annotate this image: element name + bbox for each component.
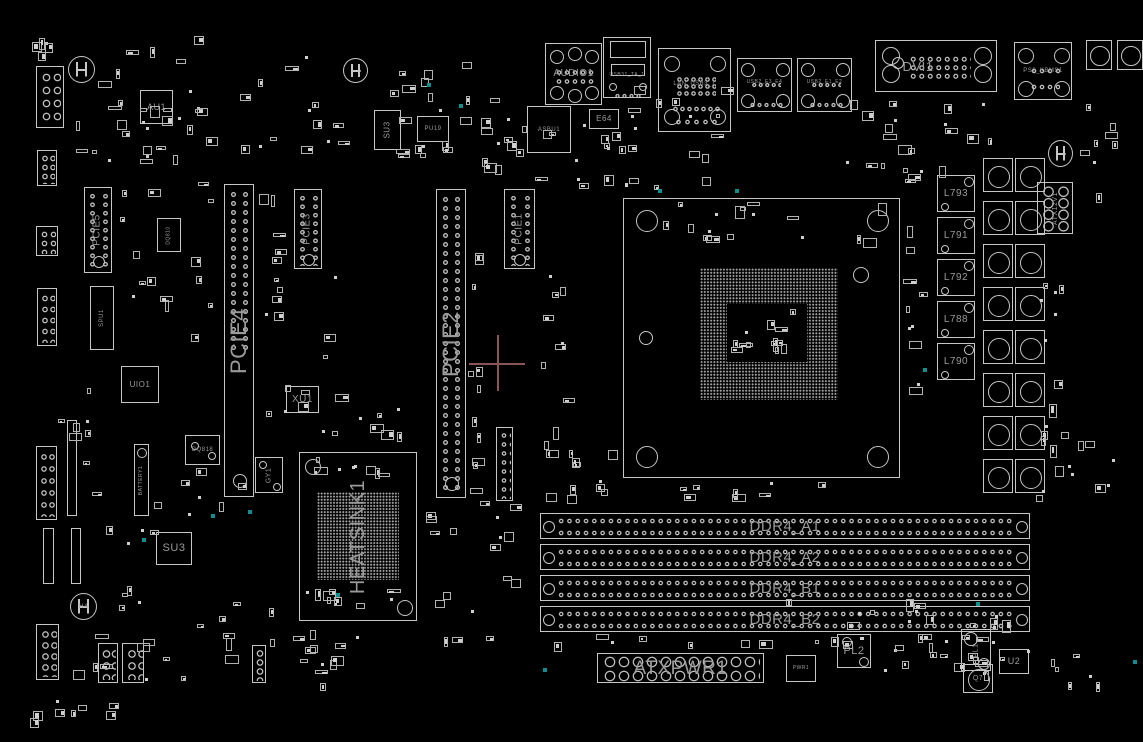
part: [1040, 299, 1043, 302]
capacitor: [983, 459, 1013, 493]
part: [570, 485, 576, 495]
part: [387, 589, 401, 593]
part: [926, 615, 934, 625]
part: [73, 670, 85, 680]
part: [322, 430, 325, 433]
part: [684, 494, 696, 501]
part: [181, 676, 186, 681]
part: [992, 641, 995, 644]
part: [678, 202, 683, 207]
component-ddr4-a1[interactable]: DDR4_A1: [540, 513, 1030, 539]
part: [503, 576, 512, 581]
part: [920, 170, 923, 173]
part: [301, 390, 310, 395]
component-dq818[interactable]: DQ818: [185, 435, 220, 465]
part: [73, 423, 80, 432]
part: [55, 709, 65, 717]
part: [628, 108, 641, 113]
part: [140, 159, 153, 164]
part: [486, 636, 494, 641]
part: [884, 669, 887, 672]
component-e64[interactable]: E64: [589, 109, 619, 129]
part: [993, 626, 996, 629]
part: [815, 640, 819, 644]
part: [1093, 161, 1096, 164]
component-pcie4[interactable]: PCIE4: [224, 184, 254, 497]
component-ddr4-b2[interactable]: DDR4_B2: [540, 606, 1030, 632]
part: [511, 579, 521, 588]
part: [555, 344, 566, 350]
part: [258, 79, 263, 87]
edge-connector: [37, 288, 57, 346]
part: [572, 458, 580, 468]
part: [984, 671, 989, 681]
part: [727, 234, 734, 240]
part: [120, 217, 125, 222]
part: [1044, 339, 1047, 342]
crystal-symbol: [68, 56, 95, 83]
component-pcie1[interactable]: PCIE1: [504, 189, 535, 269]
edge-connector: [37, 150, 57, 186]
part: [154, 502, 162, 509]
component-atxpwr1[interactable]: ATXPWR1: [597, 653, 764, 683]
part: [902, 661, 909, 669]
part: [430, 531, 440, 535]
part: [1054, 380, 1063, 389]
part: [225, 655, 239, 664]
part: [733, 489, 738, 498]
part: [908, 174, 921, 181]
part: [870, 610, 875, 615]
part: [305, 56, 308, 59]
part: [390, 90, 399, 97]
part: [546, 450, 550, 458]
part: [861, 637, 864, 640]
part: [69, 433, 82, 441]
part: [1054, 313, 1057, 316]
part: [702, 177, 711, 186]
part: [354, 465, 357, 468]
part: [181, 480, 190, 486]
part: [270, 137, 277, 141]
part: [359, 417, 362, 420]
component-label: PWR1: [787, 656, 815, 681]
part: [906, 247, 915, 254]
part: [480, 501, 490, 506]
part: [198, 182, 209, 186]
part: [76, 149, 88, 153]
part: [611, 641, 614, 644]
part: [332, 431, 338, 436]
via-marker: [543, 668, 547, 672]
part: [917, 383, 920, 386]
part: [163, 108, 172, 112]
part: [1080, 150, 1090, 156]
part: [911, 325, 914, 328]
part: [1045, 425, 1048, 428]
part: [759, 640, 773, 649]
part: [324, 334, 336, 342]
part: [516, 149, 524, 157]
part: [460, 117, 472, 125]
component-spu1[interactable]: SPU1: [90, 286, 114, 350]
part: [452, 637, 463, 643]
part: [497, 142, 500, 145]
part: [818, 482, 826, 488]
part: [274, 278, 279, 282]
part: [321, 663, 324, 666]
part: [176, 59, 186, 64]
part: [127, 542, 130, 545]
part: [1061, 432, 1069, 439]
part: [191, 334, 199, 342]
part: [269, 608, 274, 617]
part: [569, 450, 573, 458]
via-marker: [658, 189, 662, 193]
part: [945, 128, 958, 134]
part: [1055, 667, 1059, 672]
part: [634, 127, 637, 130]
part: [142, 121, 145, 124]
part: [481, 118, 491, 128]
component-su3[interactable]: SU3: [156, 532, 192, 565]
part: [208, 303, 213, 308]
part: [759, 493, 771, 497]
component-label: U2: [1000, 650, 1028, 673]
part: [422, 145, 425, 148]
part: [173, 155, 178, 165]
part: [397, 432, 402, 442]
part: [132, 295, 135, 298]
via-marker: [1133, 660, 1137, 664]
part: [139, 281, 146, 285]
via-marker: [427, 83, 431, 87]
part: [122, 131, 130, 137]
component-pwr1[interactable]: PWR1: [786, 655, 816, 682]
part: [903, 279, 917, 284]
part: [150, 106, 160, 118]
part: [156, 146, 166, 150]
part: [561, 342, 564, 345]
part: [745, 331, 748, 334]
part: [639, 636, 647, 642]
part: [396, 149, 410, 154]
part: [908, 620, 911, 623]
capacitor: [983, 158, 1013, 192]
part: [1071, 473, 1074, 476]
part: [919, 292, 928, 297]
capacitor: [1015, 158, 1045, 192]
part: [285, 66, 299, 71]
part: [92, 150, 97, 154]
via-marker: [459, 104, 463, 108]
capacitor: [983, 201, 1013, 235]
part: [327, 140, 330, 143]
part: [915, 610, 918, 613]
part: [922, 634, 932, 640]
part: [481, 128, 493, 135]
component-label: SU3: [157, 533, 191, 564]
part: [546, 493, 557, 502]
part: [878, 203, 887, 216]
component-pcie5[interactable]: PCIE5: [84, 187, 112, 273]
part: [504, 532, 514, 542]
component-pcie3[interactable]: PCIE3: [294, 189, 322, 269]
part: [914, 603, 926, 609]
part: [298, 402, 309, 412]
edge-connector: [43, 528, 54, 584]
part: [906, 306, 910, 313]
part: [310, 645, 318, 653]
component-audio1[interactable]: AUDIO1: [545, 43, 602, 105]
component-label: DQ810: [158, 219, 180, 251]
part: [468, 371, 474, 377]
part: [265, 313, 268, 316]
part: [735, 206, 745, 219]
component-dq810[interactable]: DQ810: [157, 218, 181, 252]
part: [1000, 657, 1005, 661]
capacitor: [1117, 40, 1143, 70]
part: [71, 710, 76, 717]
part: [672, 98, 680, 106]
part: [767, 320, 775, 330]
component-battery1[interactable]: BATTERY1: [134, 444, 149, 516]
crosshair-cursor: [497, 335, 499, 391]
part: [577, 178, 580, 181]
part: [786, 599, 792, 606]
part: [415, 145, 422, 154]
part: [1051, 659, 1055, 667]
part: [775, 347, 779, 354]
part: [150, 47, 155, 58]
part: [1105, 132, 1118, 139]
part: [1054, 291, 1057, 294]
part: [1059, 285, 1064, 294]
part: [241, 145, 250, 154]
part: [504, 137, 513, 143]
part: [145, 678, 148, 681]
edge-connector: [36, 446, 57, 520]
part: [426, 516, 437, 523]
part: [140, 108, 147, 112]
part: [579, 183, 589, 189]
boardview-canvas[interactable]: AUDIO1USB31_TA_1LAN_USB3_1USB2_E3_E4USB2…: [0, 0, 1143, 742]
via-marker: [142, 538, 146, 542]
part: [443, 147, 453, 153]
part: [1027, 650, 1030, 653]
part: [944, 104, 952, 114]
part: [716, 114, 720, 118]
component-l791[interactable]: L791: [937, 217, 975, 254]
part: [333, 123, 344, 128]
part: [543, 130, 552, 139]
part: [477, 433, 481, 443]
component-h4[interactable]: H4: [70, 593, 97, 620]
part: [162, 116, 173, 126]
part: [625, 184, 628, 187]
component-l788[interactable]: L788: [937, 301, 975, 338]
part: [137, 643, 150, 652]
part: [982, 103, 985, 106]
part: [402, 85, 416, 93]
part: [435, 600, 445, 608]
part: [226, 638, 232, 651]
component-ddr4-a2[interactable]: DDR4_A2: [540, 544, 1030, 570]
part: [117, 120, 127, 130]
component-gy1[interactable]: GY1: [255, 457, 283, 493]
part: [378, 473, 390, 477]
component-usb2-e1-e2[interactable]: USB2_E1_E2: [797, 58, 852, 112]
part: [490, 98, 500, 103]
part: [331, 656, 344, 666]
part: [312, 102, 319, 108]
part: [1043, 283, 1048, 289]
part: [496, 516, 499, 519]
part: [143, 146, 152, 155]
part: [885, 124, 893, 133]
part: [715, 213, 718, 216]
component-pl2[interactable]: PL2: [837, 634, 871, 668]
component-uio1[interactable]: UIO1: [121, 366, 159, 403]
part: [86, 420, 89, 423]
capacitor: [983, 330, 1013, 364]
component-u2[interactable]: U2: [999, 649, 1029, 674]
part: [109, 703, 119, 709]
component-label: SPU1: [91, 287, 113, 349]
part: [219, 616, 226, 622]
part: [689, 115, 692, 118]
part: [187, 125, 193, 135]
part: [335, 394, 349, 402]
part: [1042, 490, 1045, 493]
part: [599, 480, 602, 483]
part: [790, 309, 796, 315]
part: [973, 657, 979, 664]
part: [939, 166, 946, 178]
part: [510, 504, 522, 511]
part: [316, 457, 320, 463]
part: [45, 43, 53, 53]
part: [1095, 484, 1106, 493]
component-ps2-kbms1[interactable]: PS2_KBMS1: [1014, 42, 1072, 100]
part: [706, 236, 720, 243]
component-pcie2[interactable]: PCIE2: [436, 189, 466, 498]
part: [315, 589, 321, 601]
part: [1055, 466, 1064, 477]
component-label: SU3: [375, 111, 400, 149]
part: [634, 86, 646, 95]
part: [273, 233, 286, 237]
crystal-symbol: [343, 58, 368, 83]
component-l793[interactable]: L793: [937, 175, 975, 212]
component-dvi1[interactable]: DVI1: [875, 40, 997, 92]
part: [908, 148, 915, 154]
part: [334, 276, 337, 279]
part: [266, 411, 272, 417]
part: [608, 450, 618, 460]
part: [862, 111, 874, 121]
part: [612, 132, 621, 141]
part: [693, 485, 700, 490]
part: [76, 121, 80, 131]
part: [596, 634, 609, 640]
capacitor: [983, 373, 1013, 407]
part: [270, 639, 275, 647]
part: [850, 100, 858, 110]
capacitor: [1015, 287, 1045, 321]
via-marker: [976, 602, 980, 606]
part: [619, 146, 626, 154]
component-pu19[interactable]: PU19: [417, 116, 449, 142]
part: [188, 513, 191, 516]
part: [98, 81, 112, 88]
part: [150, 530, 159, 535]
part: [909, 341, 922, 349]
part: [223, 633, 235, 639]
part: [100, 664, 113, 669]
part: [846, 161, 849, 164]
part: [944, 123, 947, 126]
part: [908, 327, 911, 330]
part: [133, 251, 140, 259]
part: [863, 238, 877, 248]
part: [544, 441, 549, 450]
part: [995, 615, 998, 618]
part: [108, 106, 122, 110]
part: [56, 700, 59, 703]
part: [604, 175, 614, 186]
part: [313, 120, 322, 129]
part: [399, 71, 406, 76]
part: [770, 482, 773, 485]
part: [903, 168, 908, 173]
component-l792[interactable]: L792: [937, 259, 975, 296]
part: [909, 387, 923, 395]
part: [310, 630, 316, 640]
part: [240, 94, 251, 101]
part: [1089, 675, 1092, 678]
part: [315, 670, 328, 674]
part: [781, 344, 787, 354]
part: [462, 62, 472, 69]
part: [1002, 620, 1011, 633]
part: [883, 134, 897, 140]
edge-connector: [71, 528, 81, 584]
part: [535, 177, 548, 181]
capacitor: [983, 416, 1013, 450]
part: [106, 526, 113, 535]
part: [739, 343, 753, 347]
part: [147, 277, 156, 286]
component-label: E64: [590, 110, 618, 128]
part: [439, 109, 442, 112]
component-label: DQ818: [186, 436, 219, 464]
component-su3[interactable]: SU3: [374, 110, 401, 150]
via-marker: [923, 368, 927, 372]
part: [87, 388, 91, 394]
part: [731, 347, 743, 353]
part: [954, 663, 965, 672]
part: [197, 108, 208, 116]
part: [399, 117, 412, 124]
part: [466, 96, 470, 105]
component-ddr4-b1[interactable]: DDR4_B1: [540, 575, 1030, 601]
part: [575, 159, 578, 162]
component-usb2-e3-e4[interactable]: USB2_E3_E4: [737, 58, 792, 112]
part: [507, 118, 510, 121]
part: [314, 467, 328, 475]
component-l790[interactable]: L790: [937, 343, 975, 380]
